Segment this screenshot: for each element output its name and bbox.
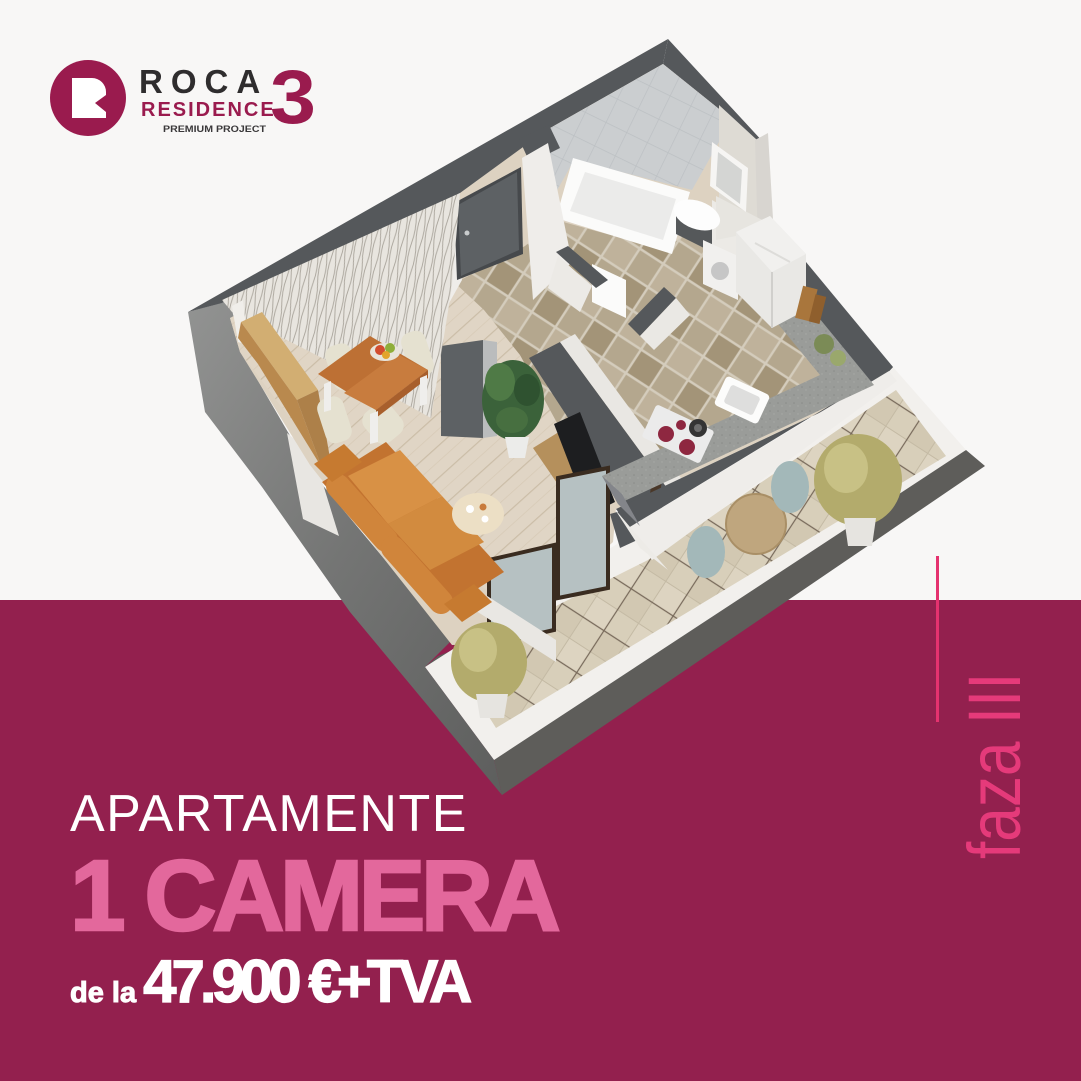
svg-text:ROCA: ROCA [139,63,268,100]
svg-text:3: 3 [270,55,316,140]
svg-text:PREMIUM PROJECT: PREMIUM PROJECT [163,124,266,135]
svg-text:RESIDENCE: RESIDENCE [141,99,276,121]
